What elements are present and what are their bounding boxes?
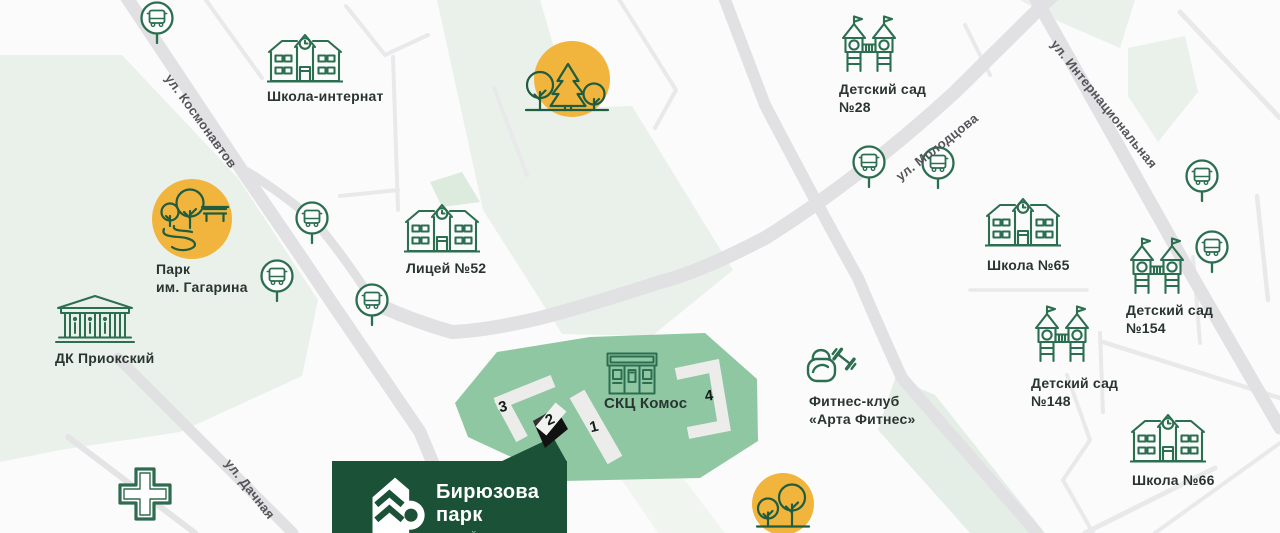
skc-komos-icon <box>606 352 658 396</box>
brand-logo-block: Бирюзова парк жилой комплекс <box>332 461 567 533</box>
park-bench-icon <box>158 186 230 256</box>
school-65-label: Школа №65 <box>987 257 1070 275</box>
park-trees-icon <box>524 60 610 114</box>
skc-komos-label: СКЦ Комос <box>604 394 687 413</box>
boarding-school-label: Школа-интернат <box>267 88 384 106</box>
dk-prioksky-icon <box>55 294 135 346</box>
lyceum-52-label: Лицей №52 <box>406 260 486 278</box>
school-66-label: Школа №66 <box>1132 472 1215 490</box>
school-65-icon <box>985 194 1061 248</box>
kindergarten-148-label: Детский сад №148 <box>1031 375 1118 411</box>
map-canvas: Школа-интернат Лицей №52 Школа №65 Школа… <box>0 0 1280 533</box>
bus-stop-icon <box>354 282 390 328</box>
fitness-club-icon <box>806 342 860 386</box>
pharmacy-cross-icon <box>117 466 173 522</box>
fitness-club-label: Фитнес-клуб «Арта Фитнес» <box>809 393 915 429</box>
brand-logo-mark <box>364 471 428 533</box>
kindergarten-154-label: Детский сад №154 <box>1126 302 1213 338</box>
park-trees-icon <box>753 476 813 533</box>
bus-stop-icon <box>294 200 330 246</box>
kindergarten-28-icon <box>837 14 903 74</box>
lyceum-52-icon <box>404 200 480 254</box>
park-gagarina-label: Парк им. Гагарина <box>156 261 248 297</box>
bus-stop-icon <box>139 0 175 46</box>
school-66-icon <box>1130 410 1206 464</box>
dk-prioksky-label: ДК Приокский <box>55 350 154 368</box>
bus-stop-icon <box>1194 229 1230 275</box>
brand-name-line1: Бирюзова <box>436 482 549 502</box>
bus-stop-icon <box>1184 158 1220 204</box>
kindergarten-28-label: Детский сад №28 <box>839 81 926 117</box>
boarding-school-icon <box>267 30 343 84</box>
bus-stop-icon <box>851 144 887 190</box>
kindergarten-148-icon <box>1030 304 1096 364</box>
brand-name-line2: парк <box>436 505 549 525</box>
kindergarten-154-icon <box>1125 236 1191 296</box>
bus-stop-icon <box>259 258 295 304</box>
